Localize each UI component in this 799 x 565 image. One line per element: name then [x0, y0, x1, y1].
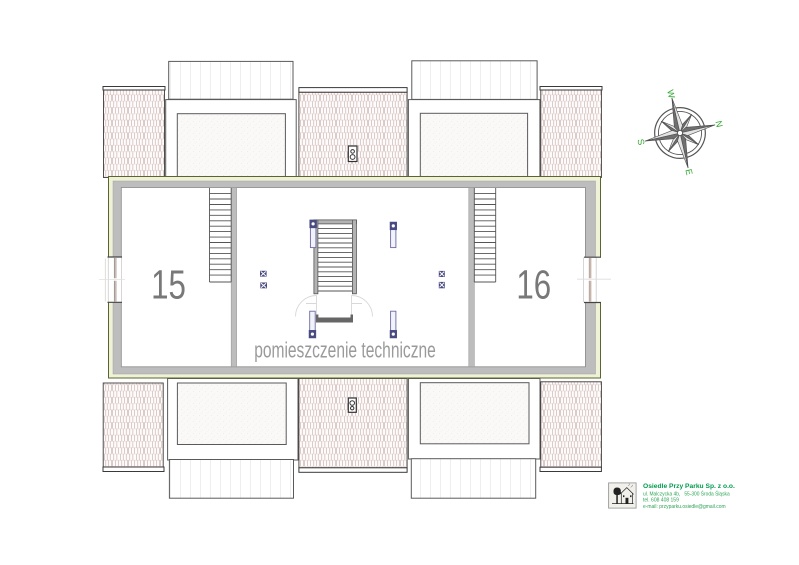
svg-text:e-mail: przyparku.osiedle@gmai: e-mail: przyparku.osiedle@gmail.com: [643, 504, 726, 510]
svg-text:15: 15: [151, 262, 186, 308]
svg-text:ul. Malczycka 4b, 55-300 Śro: ul. Malczycka 4b, 55-300 Środa Śląska: [643, 489, 730, 497]
svg-text:pomieszczenie techniczne: pomieszczenie techniczne: [254, 338, 436, 363]
svg-text:Osiedle Przy Parku Sp. z o.o.: Osiedle Przy Parku Sp. z o.o.: [643, 483, 735, 490]
svg-text:16: 16: [516, 262, 551, 308]
svg-text:tel. 608 408 159: tel. 608 408 159: [643, 498, 679, 504]
